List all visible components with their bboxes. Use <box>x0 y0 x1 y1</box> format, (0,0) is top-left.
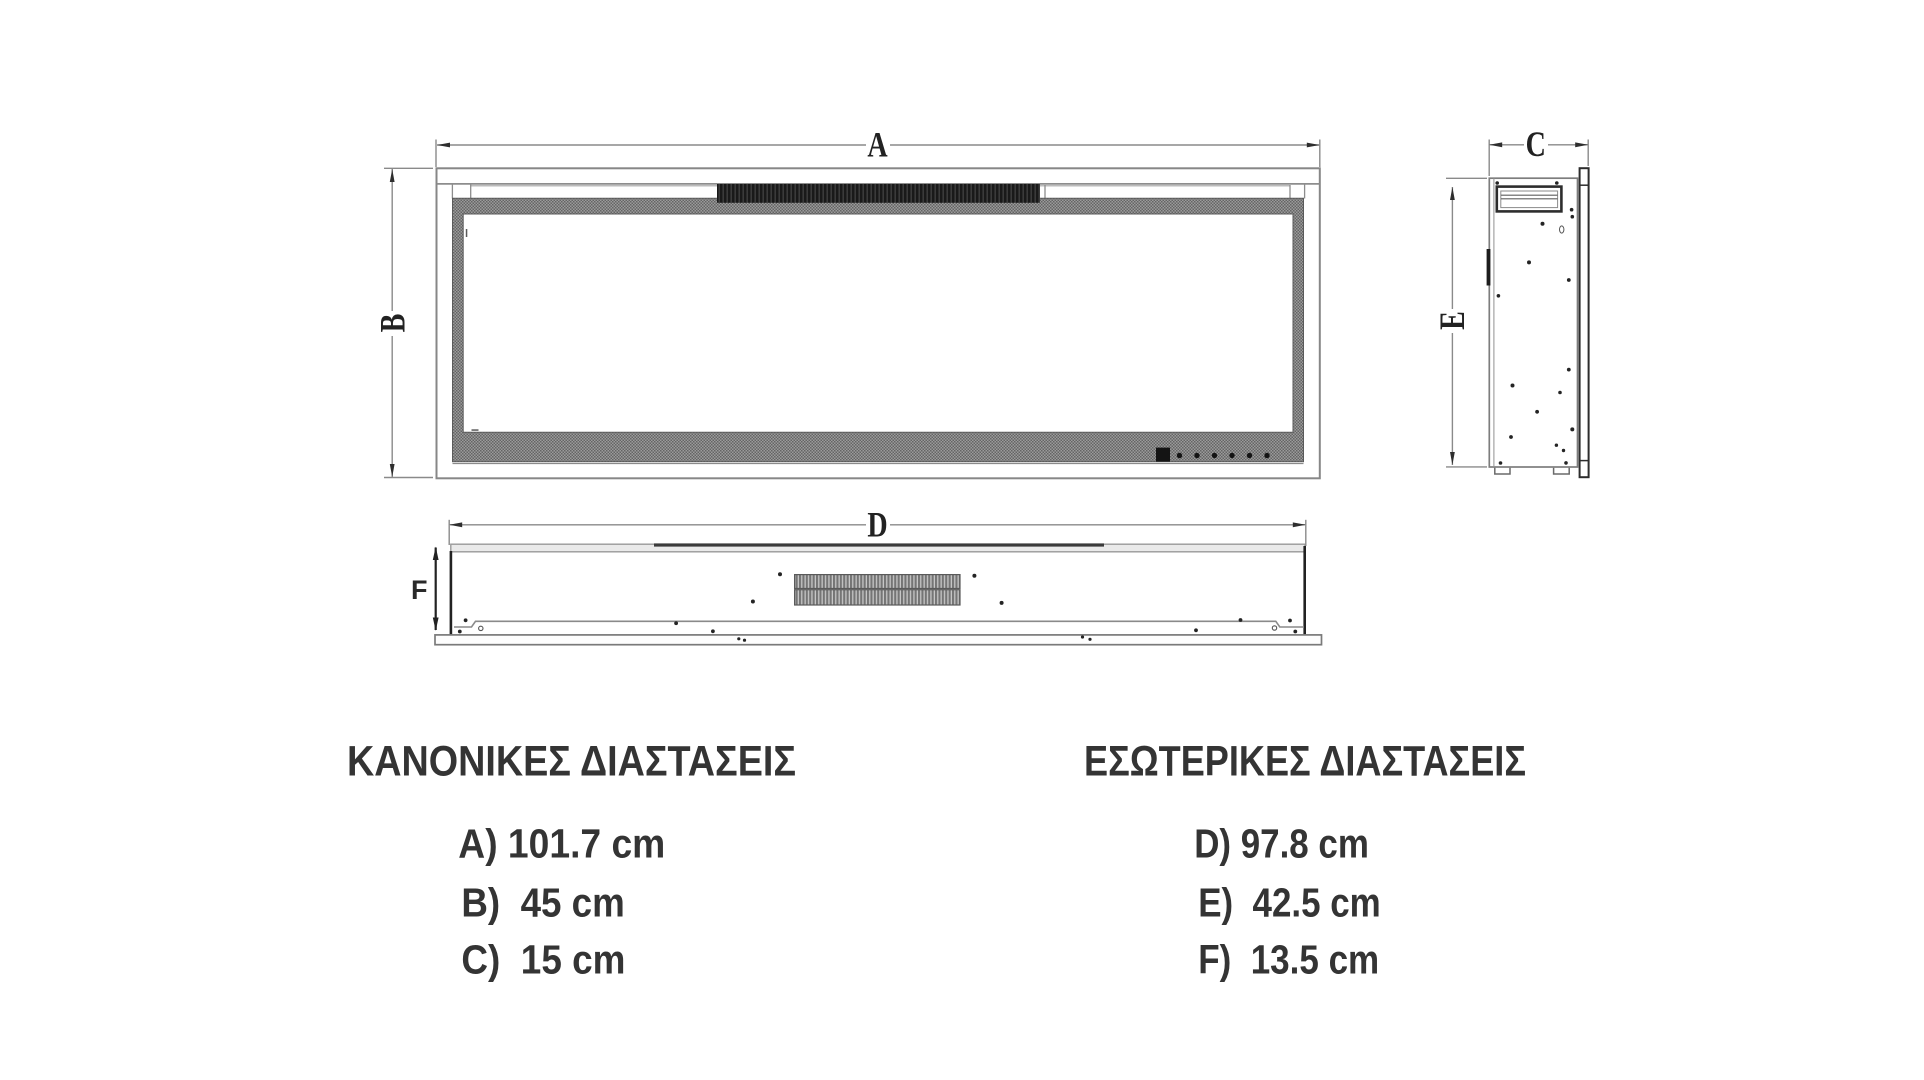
svg-text:D: D <box>867 504 887 544</box>
svg-text:B: B <box>372 314 412 333</box>
svg-text:E) 42.5 cm: E) 42.5 cm <box>1198 879 1381 925</box>
svg-text:B) 45 cm: B) 45 cm <box>461 879 624 925</box>
svg-text:ΚΑΝΟΝΙΚΕΣ ΔΙΑΣΤΑΣΕΙΣ: ΚΑΝΟΝΙΚΕΣ ΔΙΑΣΤΑΣΕΙΣ <box>347 739 796 786</box>
svg-text:ΕΣΩΤΕΡΙΚΕΣ ΔΙΑΣΤΑΣΕΙΣ: ΕΣΩΤΕΡΙΚΕΣ ΔΙΑΣΤΑΣΕΙΣ <box>1084 739 1526 786</box>
svg-text:F: F <box>411 575 428 605</box>
svg-text:D) 97.8 cm: D) 97.8 cm <box>1194 821 1369 867</box>
svg-text:A: A <box>867 124 888 164</box>
svg-text:F) 13.5 cm: F) 13.5 cm <box>1198 937 1379 983</box>
svg-text:A) 101.7 cm: A) 101.7 cm <box>458 821 665 867</box>
svg-text:E: E <box>1431 311 1471 330</box>
svg-text:C: C <box>1526 124 1546 164</box>
svg-text:C) 15 cm: C) 15 cm <box>461 937 625 983</box>
